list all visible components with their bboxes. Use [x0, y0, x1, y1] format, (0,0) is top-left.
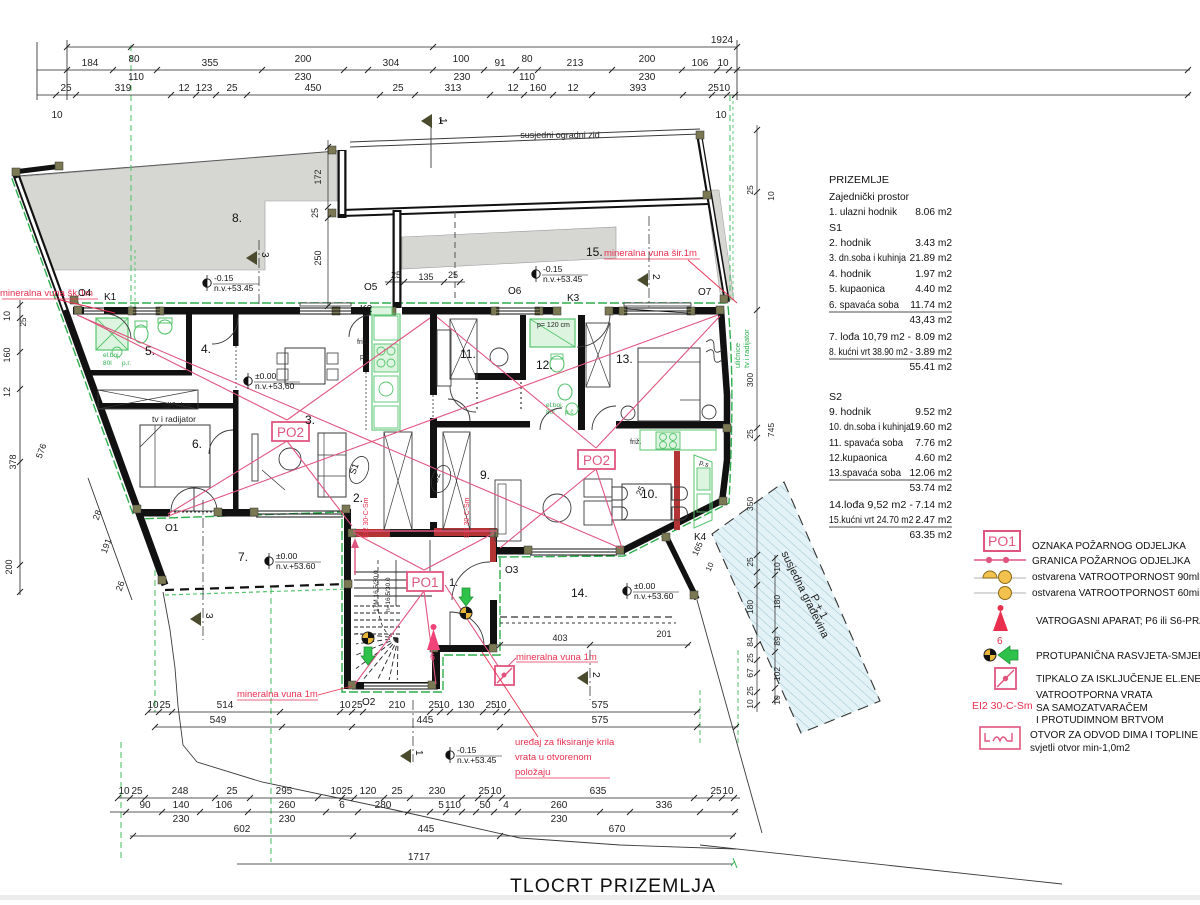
svg-text:6: 6: [339, 800, 345, 811]
svg-text:EI2 30-C-Sm: EI2 30-C-Sm: [464, 497, 471, 538]
svg-text:3: 3: [203, 613, 214, 619]
svg-text:172: 172: [313, 169, 323, 184]
svg-text:4. hodnik: 4. hodnik: [829, 269, 872, 280]
svg-text:1.: 1.: [449, 577, 458, 589]
svg-text:25: 25: [391, 786, 403, 797]
svg-text:89: 89: [772, 636, 782, 646]
svg-text:200: 200: [295, 54, 312, 65]
svg-text:445: 445: [418, 824, 435, 835]
svg-text:230: 230: [173, 814, 190, 825]
svg-text:91: 91: [494, 58, 506, 69]
svg-text:67: 67: [745, 668, 755, 678]
svg-text:n.v.+53.60: n.v.+53.60: [276, 561, 316, 571]
svg-text:230: 230: [454, 72, 471, 83]
svg-text:O2: O2: [362, 697, 376, 708]
svg-text:VATROGASNI APARAT; P6 ili S6-P: VATROGASNI APARAT; P6 ili S6-PRA: [1036, 616, 1200, 627]
svg-text:55.41 m2: 55.41 m2: [910, 362, 953, 373]
svg-text:EI2 30-C-Sm: EI2 30-C-Sm: [972, 700, 1033, 712]
svg-text:-0.15: -0.15: [214, 273, 234, 283]
svg-text:-0.15: -0.15: [457, 745, 477, 755]
svg-text:2: 2: [590, 672, 601, 678]
svg-text:PROTUPANIČNA RASVJETA-SMJER: PROTUPANIČNA RASVJETA-SMJER: [1036, 649, 1200, 662]
svg-text:10: 10: [745, 699, 755, 709]
svg-text:248: 248: [172, 786, 189, 797]
svg-text:p.č: p.č: [565, 409, 574, 416]
svg-text:12: 12: [567, 83, 579, 94]
svg-text:9. hodnik: 9. hodnik: [829, 407, 872, 418]
svg-text:2: 2: [650, 274, 661, 280]
svg-text:43,43 m2: 43,43 m2: [910, 315, 953, 326]
svg-text:PO1: PO1: [411, 575, 438, 590]
svg-text:160: 160: [2, 347, 12, 362]
svg-text:10: 10: [438, 700, 450, 711]
svg-text:ostvarena VATROOTPORNOST 60mi: ostvarena VATROOTPORNOST 60min: [1032, 588, 1200, 599]
svg-text:230: 230: [279, 814, 296, 825]
svg-text:K2: K2: [360, 304, 373, 315]
svg-text:PRIZEMLJE: PRIZEMLJE: [829, 175, 889, 186]
svg-text:110: 110: [128, 72, 144, 83]
svg-text:80l: 80l: [103, 360, 112, 367]
svg-text:90: 90: [139, 800, 151, 811]
svg-text:TIPKALO ZA ISKLJUČENJE EL.ENER: TIPKALO ZA ISKLJUČENJE EL.ENER: [1036, 672, 1200, 685]
svg-text:5: 5: [438, 800, 444, 811]
svg-text:25: 25: [226, 83, 238, 94]
svg-text:14.: 14.: [571, 586, 588, 600]
svg-text:10: 10: [715, 110, 727, 121]
svg-text:p= 120 cm: p= 120 cm: [537, 322, 570, 329]
svg-text:15.: 15.: [586, 245, 603, 259]
svg-text:445: 445: [417, 715, 434, 726]
svg-text:OTVOR ZA ODVOD DIMA I TOPLINE: OTVOR ZA ODVOD DIMA I TOPLINE: [1030, 730, 1198, 741]
svg-text:319: 319: [115, 83, 132, 94]
svg-text:O4: O4: [78, 288, 92, 299]
svg-text:n.v.+53.45: n.v.+53.45: [543, 274, 583, 284]
svg-text:110: 110: [445, 800, 461, 811]
svg-text:8.09 m2: 8.09 m2: [915, 332, 952, 343]
svg-text:575: 575: [592, 715, 609, 726]
svg-text:230: 230: [551, 814, 568, 825]
svg-text:12.06 m2: 12.06 m2: [910, 468, 953, 479]
svg-text:4.40 m2: 4.40 m2: [915, 284, 952, 295]
svg-text:140: 140: [173, 800, 190, 811]
svg-text:25: 25: [351, 700, 363, 711]
svg-text:TLOCRT PRIZEMLJA: TLOCRT PRIZEMLJA: [510, 875, 716, 897]
svg-text:25: 25: [392, 83, 404, 94]
svg-text:6. spavaća soba: 6. spavaća soba: [829, 300, 899, 311]
svg-text:12.: 12.: [536, 358, 553, 372]
svg-text:13.spavaća soba: 13.spavaća soba: [829, 468, 901, 479]
svg-text:313: 313: [445, 83, 462, 94]
svg-text:635: 635: [590, 786, 607, 797]
svg-text:230: 230: [639, 72, 656, 83]
svg-text:1. ulazni hodnik: 1. ulazni hodnik: [829, 207, 898, 218]
svg-text:10: 10: [766, 191, 776, 201]
svg-text:S1: S1: [829, 223, 842, 234]
svg-text:575: 575: [592, 700, 609, 711]
svg-text:6.: 6.: [192, 437, 202, 451]
svg-text:184: 184: [82, 58, 99, 69]
svg-text:403: 403: [552, 633, 567, 643]
svg-text:210: 210: [389, 700, 406, 711]
svg-text:1.97 m2: 1.97 m2: [915, 269, 952, 280]
svg-text:213: 213: [567, 58, 584, 69]
svg-text:180: 180: [772, 595, 782, 609]
svg-text:10: 10: [2, 311, 12, 321]
svg-text:n.v.+53,60: n.v.+53,60: [255, 381, 295, 391]
svg-text:53.74 m2: 53.74 m2: [910, 483, 953, 494]
svg-text:19.60 m2: 19.60 m2: [910, 422, 953, 433]
svg-text:200: 200: [639, 54, 656, 65]
svg-text:25: 25: [448, 270, 458, 280]
svg-text:230: 230: [429, 786, 446, 797]
svg-text:10. dn.soba i kuhinja: 10. dn.soba i kuhinja: [829, 422, 911, 433]
svg-text:393: 393: [630, 83, 647, 94]
svg-text:10: 10: [495, 700, 507, 711]
svg-text:12: 12: [178, 83, 190, 94]
svg-text:25: 25: [745, 686, 755, 696]
svg-text:4: 4: [503, 800, 509, 811]
svg-text:5.: 5.: [145, 344, 155, 358]
svg-text:106: 106: [692, 58, 709, 69]
svg-text:3.43 m2: 3.43 m2: [915, 238, 952, 249]
svg-text:susjedni ogradni zid: susjedni ogradni zid: [520, 130, 600, 140]
svg-text:GRANICA POŽARNOG ODJELJKA: GRANICA POŽARNOG ODJELJKA: [1032, 554, 1191, 567]
svg-text:O6: O6: [508, 286, 522, 297]
svg-text:3.: 3.: [305, 413, 315, 427]
svg-text:h=16,5/30.0: h=16,5/30.0: [385, 577, 392, 612]
svg-text:±0.00: ±0.00: [276, 551, 297, 561]
svg-text:mineralna vuna šir.1m: mineralna vuna šir.1m: [604, 248, 697, 259]
svg-text:350: 350: [745, 497, 755, 511]
svg-text:602: 602: [234, 824, 251, 835]
svg-text:n.v.+53.45: n.v.+53.45: [214, 283, 254, 293]
svg-text:7.76 m2: 7.76 m2: [915, 438, 952, 449]
svg-text:K1: K1: [104, 292, 117, 303]
svg-text:12.kupaonica: 12.kupaonica: [829, 453, 887, 464]
svg-text:tv i radijator: tv i radijator: [742, 329, 751, 368]
svg-text:friž.: friž.: [357, 339, 368, 346]
svg-text:10: 10: [51, 110, 63, 121]
svg-text:PO2: PO2: [583, 453, 610, 468]
svg-text:745: 745: [766, 423, 776, 437]
svg-text:uličnice: uličnice: [733, 343, 742, 368]
svg-text:50: 50: [479, 800, 491, 811]
svg-text:S2: S2: [829, 392, 842, 403]
svg-text:110: 110: [519, 72, 535, 83]
svg-text:336: 336: [656, 800, 673, 811]
svg-text:8.06 m2: 8.06 m2: [915, 207, 952, 218]
svg-text:25: 25: [19, 317, 28, 326]
svg-text:Zajednički prostor: Zajednički prostor: [829, 192, 910, 203]
svg-text:2.47 m2: 2.47 m2: [915, 515, 952, 526]
svg-text:450: 450: [305, 83, 322, 94]
svg-text:7.14 m2: 7.14 m2: [915, 500, 952, 511]
svg-text:180: 180: [745, 600, 755, 614]
svg-text:O1: O1: [165, 523, 179, 534]
svg-text:100: 100: [453, 54, 470, 65]
svg-text:3.89 m2: 3.89 m2: [915, 347, 952, 358]
svg-text:friž.: friž.: [630, 439, 641, 446]
svg-text:VATROOTPORNA VRATA: VATROOTPORNA VRATA: [1036, 690, 1153, 701]
svg-text:3. dn.soba i kuhinja: 3. dn.soba i kuhinja: [829, 253, 906, 264]
svg-text:11.74 m2: 11.74 m2: [910, 300, 952, 311]
svg-text:135: 135: [418, 272, 433, 282]
svg-text:mineralna vuna 1m: mineralna vuna 1m: [237, 689, 318, 700]
svg-text:6: 6: [997, 636, 1003, 647]
svg-text:130: 130: [458, 700, 475, 711]
svg-text:-0.15: -0.15: [543, 264, 563, 274]
svg-text:1717: 1717: [408, 852, 431, 863]
svg-text:p.s: p.s: [360, 354, 370, 361]
svg-text:355: 355: [202, 58, 219, 69]
svg-text:O3: O3: [505, 565, 519, 576]
svg-text:63.35 m2: 63.35 m2: [910, 530, 953, 541]
svg-text:10: 10: [339, 700, 351, 711]
svg-text:uličnice: uličnice: [163, 400, 192, 410]
svg-text:I PROTUDIMNOM BRTVOM: I PROTUDIMNOM BRTVOM: [1036, 715, 1164, 726]
svg-text:25: 25: [745, 557, 755, 567]
svg-text:80: 80: [128, 54, 140, 65]
svg-text:80: 80: [521, 54, 533, 65]
svg-text:10: 10: [147, 700, 159, 711]
svg-text:7. lođa 10,79 m2 -: 7. lođa 10,79 m2 -: [829, 332, 911, 343]
svg-text:120: 120: [360, 786, 377, 797]
svg-text:12: 12: [507, 83, 519, 94]
svg-text:9.52 m2: 9.52 m2: [915, 407, 952, 418]
svg-text:378: 378: [8, 454, 18, 469]
svg-text:položaju: položaju: [515, 767, 550, 778]
svg-text:106: 106: [216, 800, 233, 811]
svg-text:1924: 1924: [711, 35, 734, 46]
svg-text:10: 10: [772, 695, 782, 705]
svg-text:11. spavaća soba: 11. spavaća soba: [829, 438, 903, 449]
svg-text:p.r.: p.r.: [122, 360, 131, 367]
svg-text:8. kućni vrt 38.90 m2 -: 8. kućni vrt 38.90 m2 -: [829, 347, 913, 358]
svg-text:295: 295: [276, 786, 293, 797]
svg-text:15.kućni vrt 24.70 m2 -: 15.kućni vrt 24.70 m2 -: [829, 515, 919, 526]
svg-text:10: 10: [772, 562, 782, 572]
svg-text:2. hodnik: 2. hodnik: [829, 238, 872, 249]
svg-text:PO1: PO1: [988, 533, 1016, 549]
svg-text:vrata u otvorenom: vrata u otvorenom: [515, 752, 592, 763]
svg-text:2510: 2510: [708, 83, 731, 94]
svg-text:25: 25: [745, 429, 755, 439]
svg-text:11.: 11.: [460, 347, 476, 361]
svg-text:25: 25: [391, 270, 401, 280]
svg-text:mineralna vuna 1m: mineralna vuna 1m: [516, 652, 597, 663]
svg-text:8.: 8.: [232, 211, 242, 225]
svg-text:25: 25: [745, 653, 755, 663]
svg-text:SA SAMOZATVARAČEM: SA SAMOZATVARAČEM: [1036, 701, 1148, 714]
svg-text:OZNAKA POŽARNOG ODJELJKA: OZNAKA POŽARNOG ODJELJKA: [1032, 539, 1186, 552]
svg-text:21.89 m2: 21.89 m2: [910, 253, 953, 264]
svg-text:3: 3: [259, 252, 270, 258]
svg-text:25: 25: [341, 786, 353, 797]
svg-text:PO2: PO2: [277, 425, 304, 440]
svg-text:±0.00: ±0.00: [255, 371, 276, 381]
svg-text:280: 280: [375, 800, 392, 811]
svg-text:14.lođa 9,52 m2 -: 14.lođa 9,52 m2 -: [829, 500, 913, 511]
svg-text:201: 201: [656, 629, 671, 639]
svg-text:17M 16,5/30,0: 17M 16,5/30,0: [373, 570, 380, 612]
svg-text:25: 25: [310, 208, 320, 218]
svg-text:160: 160: [530, 83, 547, 94]
svg-text:O5: O5: [364, 282, 378, 293]
svg-text:260: 260: [279, 800, 296, 811]
svg-text:300: 300: [745, 373, 755, 387]
svg-text:304: 304: [383, 58, 400, 69]
svg-text:250: 250: [313, 250, 323, 265]
svg-text:±0.00: ±0.00: [634, 581, 655, 591]
svg-text:25: 25: [60, 83, 72, 94]
svg-text:EI2 30-C-Sm: EI2 30-C-Sm: [363, 497, 370, 538]
svg-text:tv i radijator: tv i radijator: [152, 414, 196, 424]
svg-text:n.v.+53.60: n.v.+53.60: [634, 591, 674, 601]
svg-text:25: 25: [745, 185, 755, 195]
svg-text:1: 1: [437, 118, 448, 124]
svg-text:2.: 2.: [353, 491, 363, 505]
svg-text:1: 1: [413, 750, 424, 756]
svg-text:102: 102: [772, 667, 782, 681]
svg-text:7.: 7.: [238, 550, 248, 564]
svg-text:670: 670: [609, 824, 626, 835]
svg-text:84: 84: [745, 637, 755, 647]
svg-text:6: 6: [430, 652, 435, 662]
svg-text:9.: 9.: [480, 468, 490, 482]
svg-text:n.v.+53.45: n.v.+53.45: [457, 755, 497, 765]
svg-text:25: 25: [226, 786, 238, 797]
svg-text:12: 12: [2, 387, 12, 397]
svg-text:4.60 m2: 4.60 m2: [915, 453, 952, 464]
svg-text:5. kupaonica: 5. kupaonica: [829, 284, 885, 295]
svg-text:10: 10: [330, 786, 342, 797]
svg-text:svjetli otvor min-1,0m2: svjetli otvor min-1,0m2: [1030, 743, 1130, 754]
svg-text:514: 514: [217, 700, 234, 711]
svg-text:K3: K3: [567, 293, 580, 304]
svg-text:ostvarena VATROOTPORNOST 90mln: ostvarena VATROOTPORNOST 90mln: [1032, 572, 1200, 583]
svg-text:O7: O7: [698, 287, 712, 298]
svg-text:13.: 13.: [616, 352, 633, 366]
svg-text:4.: 4.: [201, 342, 211, 356]
svg-text:549: 549: [210, 715, 227, 726]
svg-text:uređaj za fiksiranje krila: uređaj za fiksiranje krila: [515, 737, 615, 748]
svg-text:260: 260: [551, 800, 568, 811]
svg-text:230: 230: [295, 72, 312, 83]
svg-text:200: 200: [4, 559, 14, 574]
